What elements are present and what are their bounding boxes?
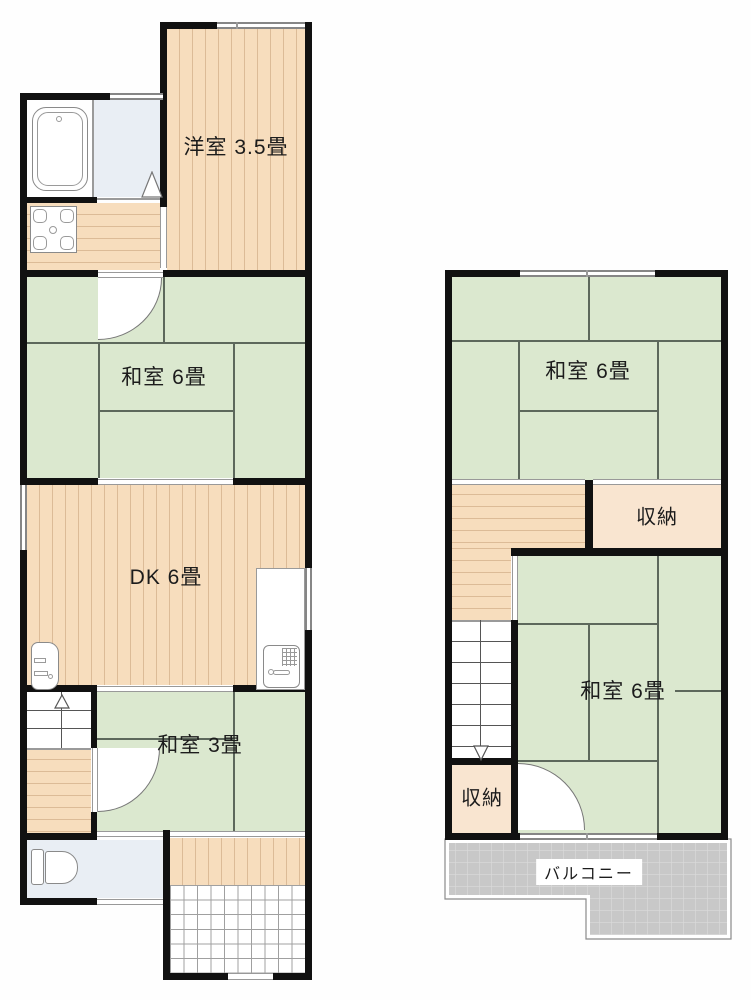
room-label-washitsu6-south: 和室 6畳 (580, 675, 666, 705)
stove-burner-icon (60, 236, 74, 250)
wall (20, 478, 98, 485)
wall (91, 692, 97, 748)
washbasin-faucet-icon (34, 658, 46, 663)
partition-line (92, 100, 94, 197)
stair-tread (452, 725, 511, 726)
tatami-line (452, 340, 721, 342)
window (110, 93, 163, 100)
washbasin-drain-icon (48, 674, 53, 679)
wall (657, 833, 728, 840)
tatami-line (657, 340, 659, 480)
stair-tread (27, 710, 91, 711)
stair-tread (452, 683, 511, 684)
window-tick (586, 270, 588, 277)
tatami-line (98, 410, 233, 412)
entrance-tile-floor (170, 885, 305, 973)
toilet-bowl-icon (45, 851, 78, 884)
tatami-line (588, 277, 590, 340)
wall (721, 270, 728, 840)
washroom-door-icon (140, 171, 164, 199)
stove-knob-icon (49, 226, 57, 234)
landing-floor (452, 483, 585, 548)
tatami-line (233, 342, 235, 478)
toilet-tank-icon (31, 849, 44, 885)
room-label-dk: DK 6畳 (130, 561, 203, 591)
window-tick (236, 22, 238, 29)
wall (20, 93, 27, 483)
balcony-sliding-door (520, 833, 657, 840)
wall (20, 197, 97, 203)
tatami-line (518, 410, 657, 412)
room-label-washitsu6: 和室 6畳 (121, 361, 207, 391)
wall (305, 22, 312, 980)
room-label-washitsu3: 和室 3畳 (157, 729, 243, 759)
sink-faucet-knob-icon (268, 669, 274, 675)
wall (163, 270, 312, 277)
bathtub-drain-icon (56, 116, 62, 122)
sliding-door (512, 556, 518, 620)
stove-burner-icon (33, 209, 47, 223)
sliding-door (170, 831, 305, 837)
washbasin-icon (31, 642, 59, 690)
sliding-door (97, 686, 233, 692)
room-label-yoshitsu: 洋室 3.5畳 (183, 131, 288, 161)
tatami-line (675, 690, 721, 692)
stove-burner-icon (33, 236, 47, 250)
window (305, 568, 312, 630)
stair-tread (452, 662, 511, 663)
wall (585, 480, 593, 556)
wall (163, 830, 170, 980)
floor-plan: 洋室 3.5畳 和室 6畳 DK 6畳 和室 3畳 (0, 0, 751, 1000)
partition-line (27, 748, 91, 750)
door-opening (96, 831, 163, 837)
window (20, 483, 27, 550)
wall (20, 898, 97, 905)
tatami-line (27, 342, 305, 344)
tatami-line (518, 760, 657, 762)
wall (511, 548, 721, 556)
window (217, 22, 308, 29)
entrance-door (228, 973, 273, 980)
wall (511, 620, 518, 833)
sink-drainer-icon (282, 648, 297, 666)
wall (20, 270, 98, 277)
sliding-door (98, 479, 233, 485)
hall-floor (27, 748, 91, 833)
sliding-door (452, 479, 585, 485)
balcony (443, 838, 735, 944)
stair-tread (27, 728, 91, 729)
stairs-down-arrow-icon (473, 745, 489, 762)
partition-line (452, 620, 511, 622)
sink-faucet-icon (273, 670, 290, 675)
tatami-line (233, 692, 235, 833)
tatami-line (163, 277, 165, 342)
wall (233, 478, 312, 485)
washbasin-faucet-icon (34, 671, 48, 676)
wall (20, 833, 27, 905)
sliding-door (593, 479, 721, 485)
wall (20, 833, 96, 840)
stairs-up-arrow-icon (54, 694, 70, 710)
room-label-closet-north: 収納 (636, 501, 678, 530)
room-label-closet-south: 収納 (461, 782, 503, 811)
room-label-washitsu6-north: 和室 6畳 (545, 355, 631, 385)
entrance-wood-floor (170, 838, 305, 885)
landing-floor (452, 548, 511, 620)
wall (445, 833, 520, 840)
bathtub-inner-icon (37, 112, 83, 186)
window-tick (586, 833, 588, 840)
door-opening (160, 205, 167, 268)
stair-tread (452, 704, 511, 705)
stove-burner-icon (60, 209, 74, 223)
stair-rail-line (480, 620, 481, 747)
room-label-balcony: バルコニー (536, 859, 642, 885)
stair-tread (452, 641, 511, 642)
toilet-door (97, 899, 163, 905)
wall (445, 270, 452, 840)
